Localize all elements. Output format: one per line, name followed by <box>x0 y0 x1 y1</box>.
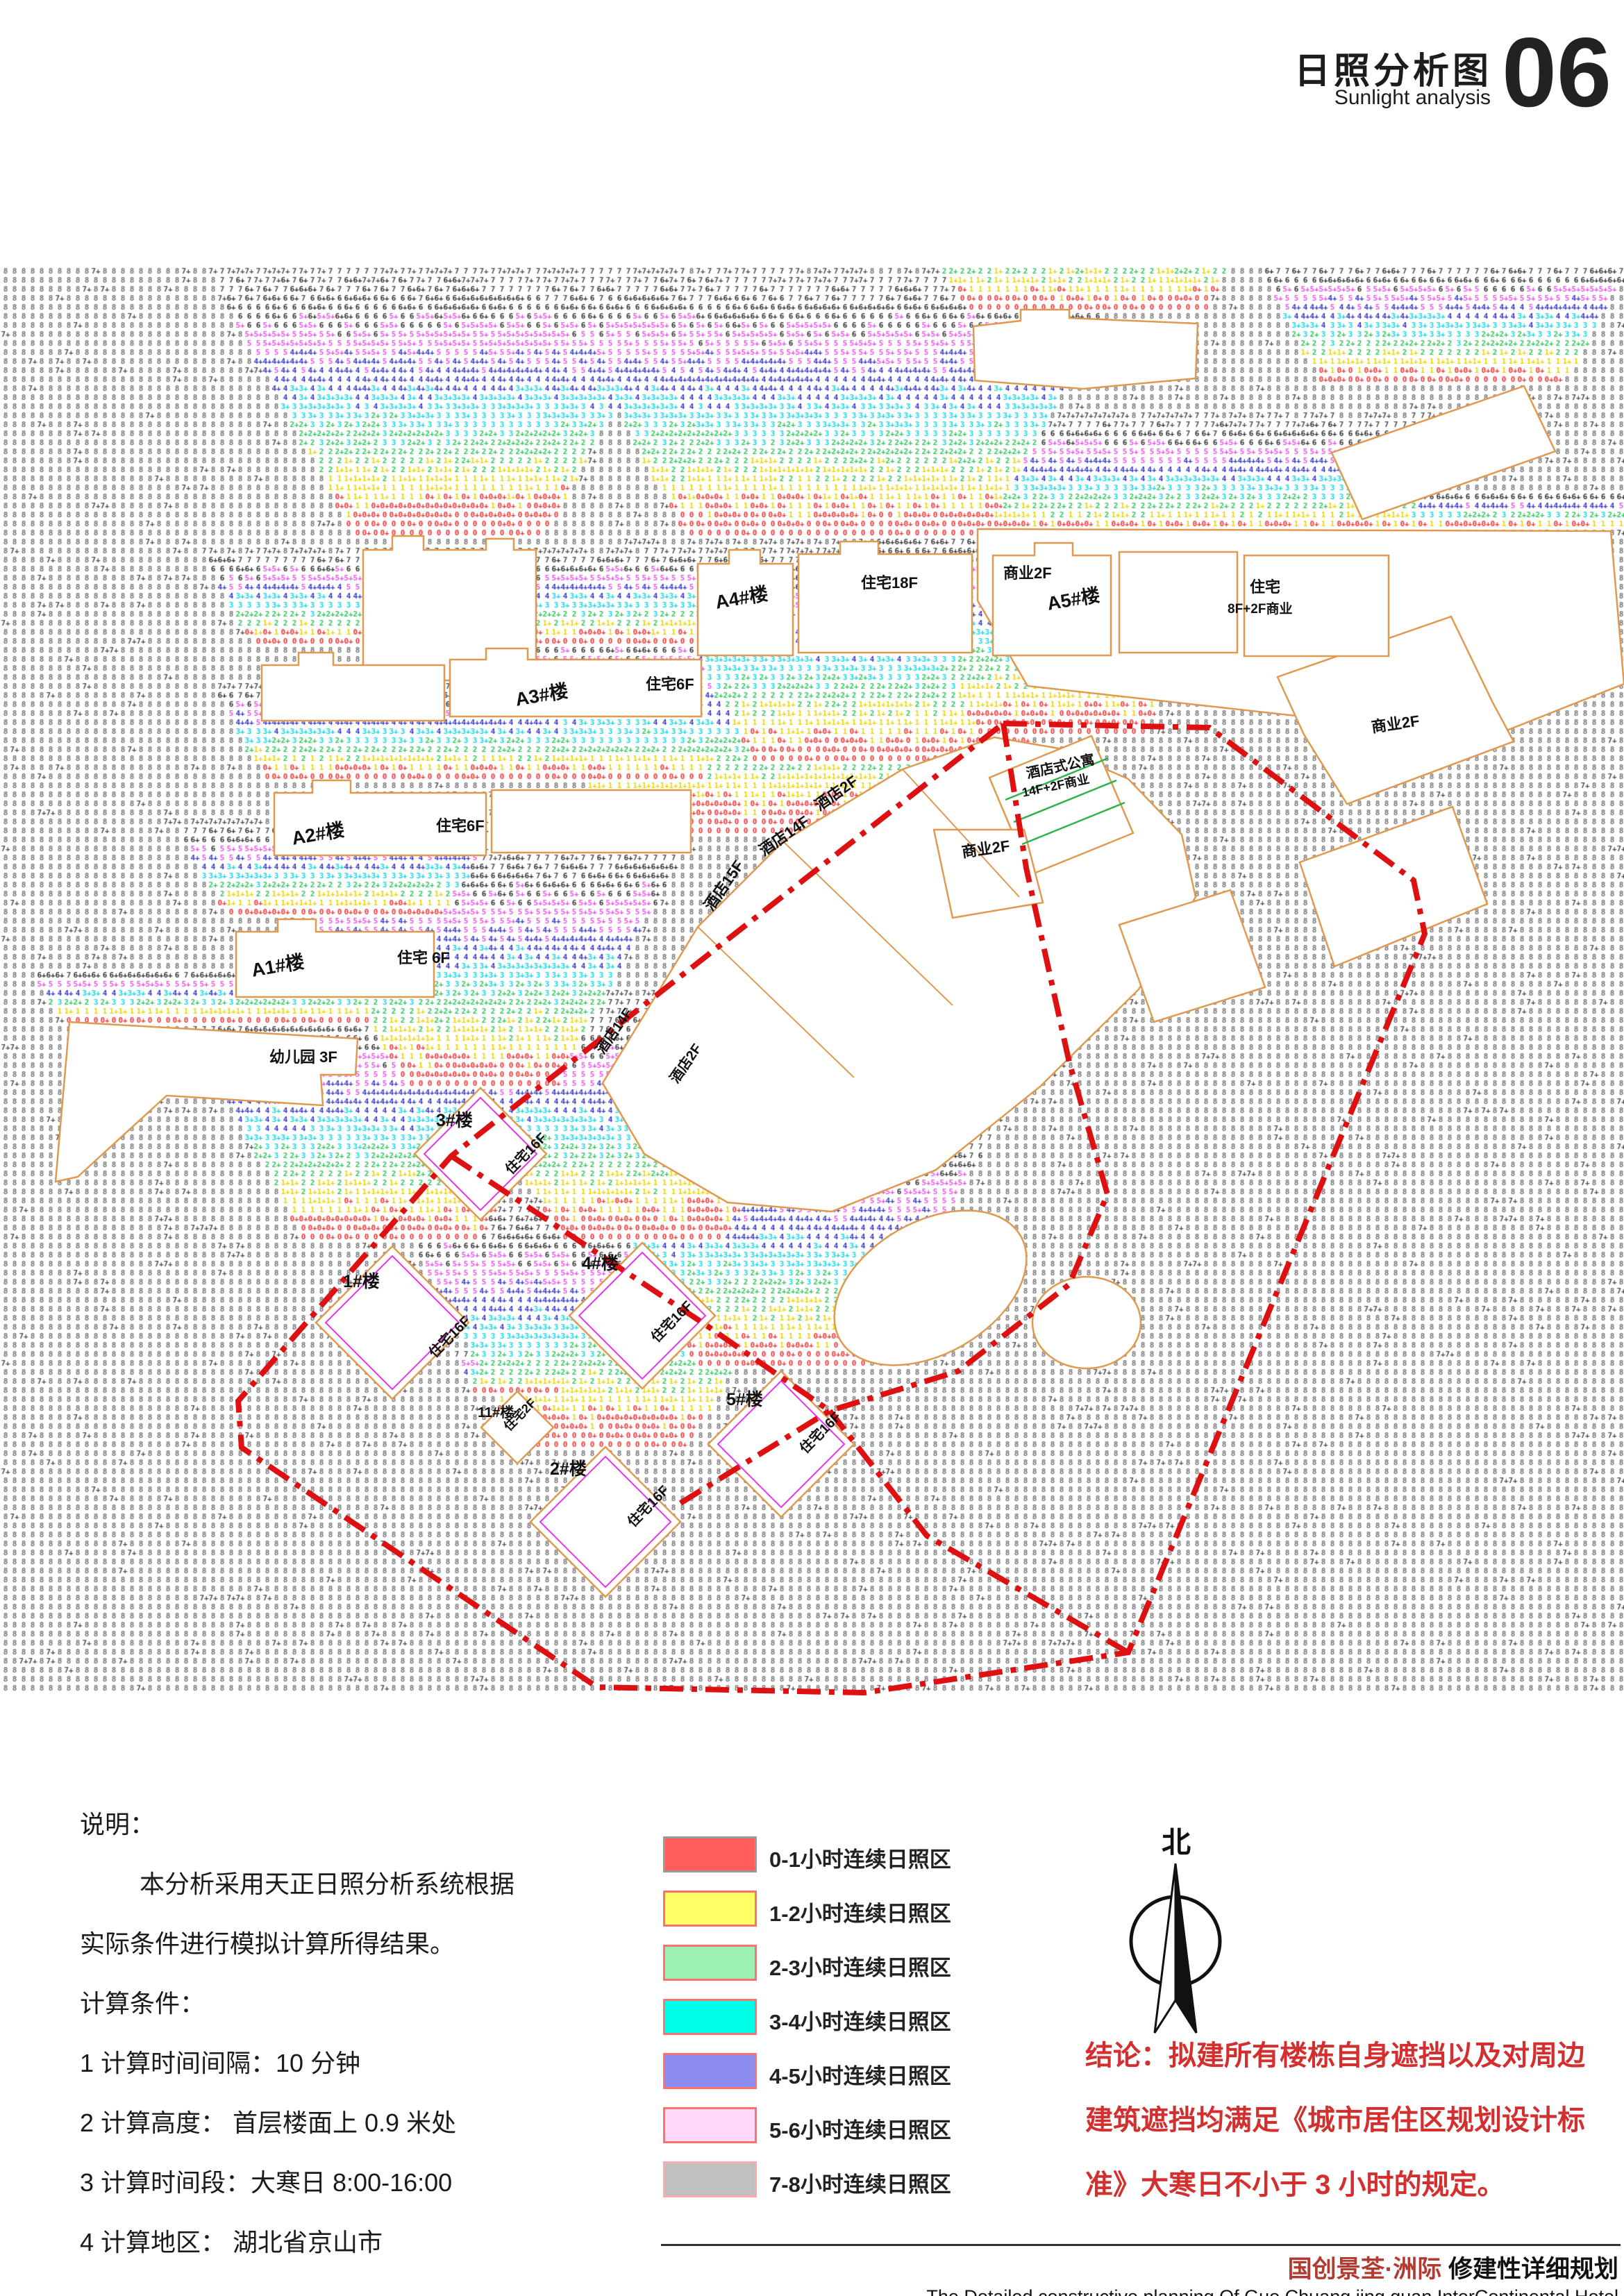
legend-label-0-1: 0-1小时连续日照区 <box>769 1842 951 1873</box>
site-plan-overlay <box>0 266 1624 1698</box>
legend-swatch-1-2 <box>663 1891 757 1927</box>
building-label: 住宅 <box>1250 575 1280 597</box>
building-label: 2#楼 <box>550 1455 587 1480</box>
legend-label-3-4: 3-4小时连续日照区 <box>769 2004 951 2036</box>
building-label: 商业2F <box>1003 561 1052 583</box>
page-subtitle-en: Sunlight analysis <box>1334 86 1491 110</box>
title-block: 日照分析图 Sunlight analysis 06 <box>1291 36 1617 140</box>
legend-label-1-2: 1-2小时连续日照区 <box>769 1896 951 1927</box>
building-label: 3#楼 <box>436 1107 473 1132</box>
legend-swatch-7-8 <box>663 2161 757 2197</box>
building-label: 1#楼 <box>343 1268 380 1293</box>
notes-line-3: 计算条件： <box>80 1974 628 2034</box>
legend-swatch-2-3 <box>663 1945 757 1981</box>
conclusion-block: 结论：拟建所有楼栋自身遮挡以及对周边建筑遮挡均满足《城市居住区规划设计标准》大寒… <box>1085 2024 1624 2218</box>
building-label: 住宅 6F <box>397 946 450 968</box>
notes-line-6: 3 计算时间段：大寒日 8:00-16:00 <box>80 2153 628 2213</box>
building-label: 4#楼 <box>582 1250 619 1275</box>
legend-swatch-0-1 <box>663 1836 757 1872</box>
legend-swatch-3-4 <box>663 1999 757 2035</box>
project-subtitle-en: The Detailed constructive planning Of Gu… <box>646 2286 1618 2296</box>
notes-block: 说明： 本分析采用天正日照分析系统根据实际条件进行模拟计算所得结果。计算条件：1… <box>80 1795 628 2272</box>
notes-line-1: 本分析采用天正日照分析系统根据 <box>80 1854 628 1914</box>
legend-swatch-4-5 <box>663 2053 757 2089</box>
sunlight-analysis-map: A4#楼住宅18FA5#楼住宅8F+2F商业商业2F商业2FA3#楼住宅6FA2… <box>0 266 1624 1698</box>
project-name-black: 修建性详细规划 <box>1448 2256 1618 2283</box>
legend-label-5-6: 5-6小时连续日照区 <box>769 2113 951 2144</box>
building-label: 8F+2F商业 <box>1228 598 1292 617</box>
building-label: 住宅6F <box>436 814 485 836</box>
notes-title: 说明： <box>80 1795 628 1854</box>
north-arrow: 北 <box>1121 1819 1239 2055</box>
notes-line-5: 2 计算高度： 首层楼面上 0.9 米处 <box>80 2093 628 2153</box>
notes-line-2: 实际条件进行模拟计算所得结果。 <box>80 1914 628 1974</box>
footer: 国创景荃·洲际 修建性详细规划 The Detailed constructiv… <box>646 2249 1618 2296</box>
legend-label-4-5: 4-5小时连续日照区 <box>769 2059 951 2090</box>
conclusion-line-2: 建筑遮挡均满足《城市居住区规划设计标 <box>1085 2088 1624 2153</box>
project-name-red: 国创景荃·洲际 <box>1288 2256 1442 2283</box>
sheet-number: 06 <box>1502 24 1612 122</box>
conclusion-line-1: 结论：拟建所有楼栋自身遮挡以及对周边 <box>1085 2024 1624 2088</box>
footer-rule <box>661 2244 1621 2246</box>
notes-line-4: 1 计算时间间隔：10 分钟 <box>80 2034 628 2093</box>
building-label: 幼儿园 3F <box>269 1045 337 1067</box>
legend-label-2-3: 2-3小时连续日照区 <box>769 1950 951 1981</box>
legend-label-7-8: 7-8小时连续日照区 <box>769 2167 951 2198</box>
notes-line-7: 4 计算地区： 湖北省京山市 <box>80 2213 628 2272</box>
legend-swatch-5-6 <box>663 2107 757 2143</box>
building-label: 住宅18F <box>861 571 918 593</box>
building-label: 住宅6F <box>646 672 694 694</box>
building-label: 5#楼 <box>726 1386 763 1411</box>
conclusion-line-3: 准》大寒日不小于 3 小时的规定。 <box>1085 2153 1624 2218</box>
